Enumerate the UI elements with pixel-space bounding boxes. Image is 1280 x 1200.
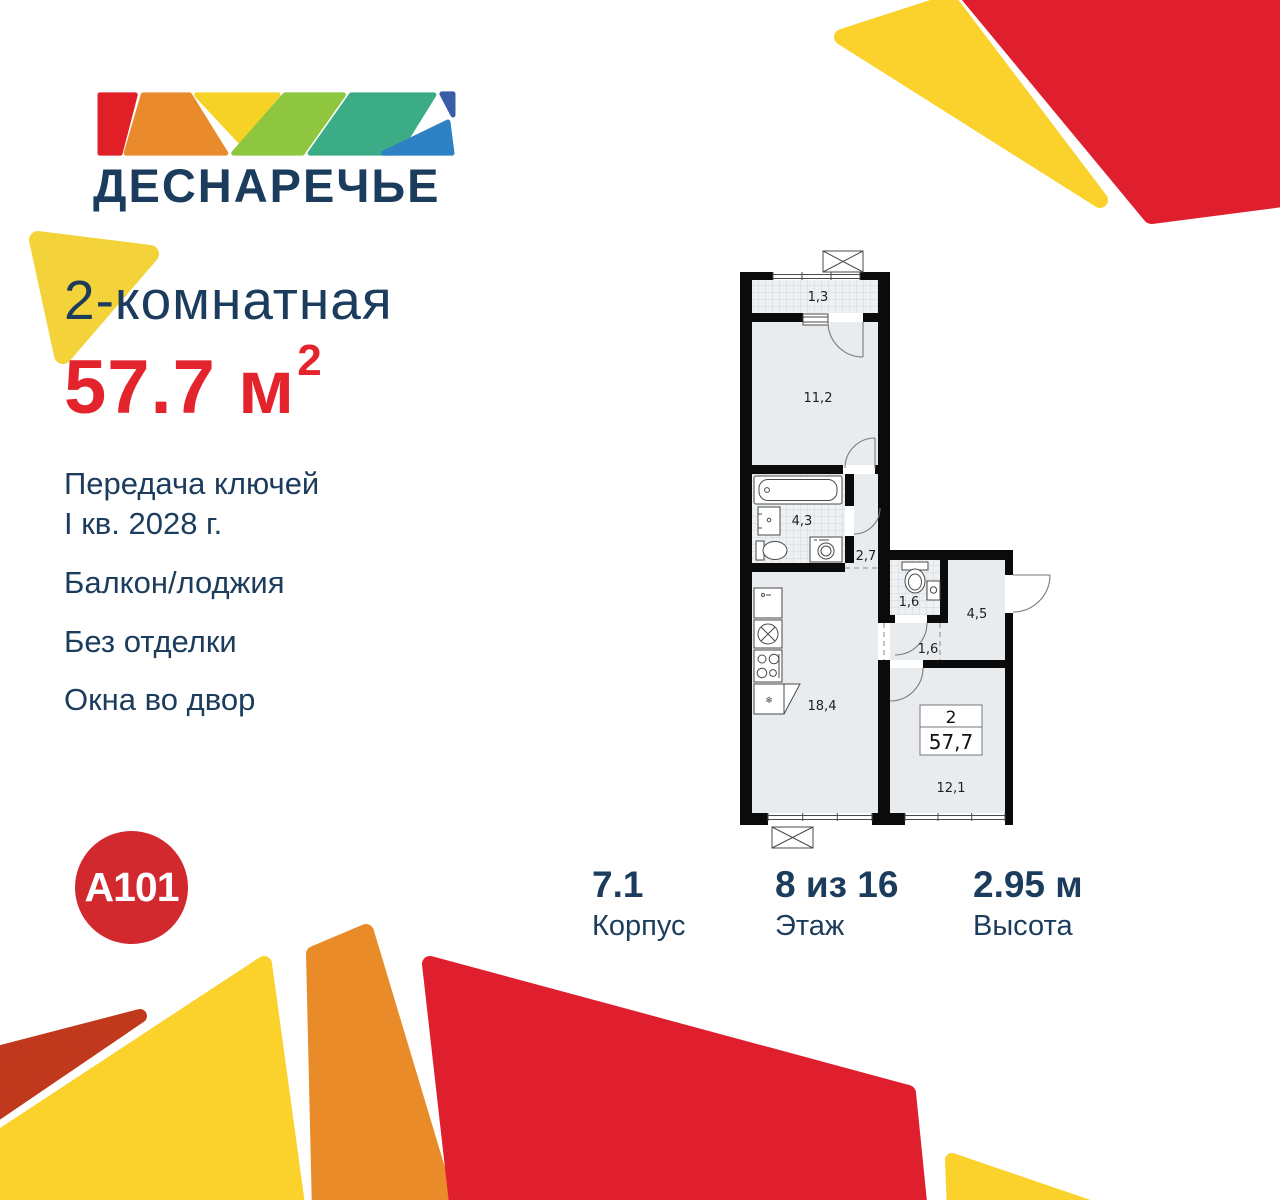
shape-bottom-red-wedge — [430, 964, 920, 1200]
area-value: 57.7 м2 — [64, 336, 323, 431]
wc-basin-icon — [927, 581, 940, 600]
developer-logo-text: A101 — [84, 864, 178, 911]
mosaic-blue-dark — [442, 94, 453, 115]
label-entry: 4,5 — [967, 607, 988, 622]
stat-floor-label: Этаж — [775, 910, 898, 943]
label-bathroom: 4,3 — [792, 514, 813, 529]
stat-building: 7.1 Корпус — [592, 866, 686, 943]
label-living-room: 11,2 — [804, 391, 833, 406]
page-title: 2-комнатная — [64, 268, 393, 332]
stat-building-value: 7.1 — [592, 866, 686, 904]
stat-height-label: Высота — [973, 910, 1083, 943]
label-wc: 1,6 — [899, 595, 920, 610]
kitchen-sink-icon — [754, 588, 782, 618]
stove-icon — [754, 650, 782, 682]
label-kitchen: 18,4 — [808, 699, 837, 714]
stat-building-label: Корпус — [592, 910, 686, 943]
area-number: 57.7 м — [64, 345, 295, 430]
feature-finishing: Без отделки — [64, 624, 237, 660]
label-hallway2: 1,6 — [918, 642, 939, 657]
area-superscript: 2 — [297, 336, 322, 385]
feature-balcony: Балкон/лоджия — [64, 565, 284, 601]
bath-sink-icon — [758, 507, 780, 535]
label-hallway: 2,7 — [856, 549, 877, 564]
hob-icon — [754, 620, 782, 648]
stat-floor: 8 из 16 Этаж — [775, 866, 898, 943]
svg-text:❄: ❄ — [765, 695, 773, 705]
apartment-tag: 2 57,7 — [920, 705, 982, 755]
feature-handover-line1: Передача ключей — [64, 466, 319, 502]
feature-windows: Окна во двор — [64, 682, 255, 718]
tag-area: 57,7 — [929, 730, 974, 754]
brand-logo-mosaic — [95, 88, 457, 160]
toilet-icon — [756, 541, 787, 560]
shape-bottomright-yellow — [952, 1160, 1104, 1200]
stat-height: 2.95 м Высота — [973, 866, 1083, 943]
stat-height-value: 2.95 м — [973, 866, 1083, 904]
stat-floor-value: 8 из 16 — [775, 866, 898, 904]
brand-name: ДЕСНАРЕЧЬЕ — [93, 158, 441, 213]
feature-handover-line2: I кв. 2028 г. — [64, 506, 222, 542]
developer-logo: A101 — [75, 831, 188, 944]
washing-machine-icon — [810, 537, 842, 562]
label-balcony: 1,3 — [808, 290, 829, 305]
bathtub-icon — [754, 476, 842, 504]
label-bedroom: 12,1 — [937, 781, 966, 796]
floor-plan: ❄ — [730, 250, 1060, 850]
tag-rooms: 2 — [946, 708, 957, 728]
